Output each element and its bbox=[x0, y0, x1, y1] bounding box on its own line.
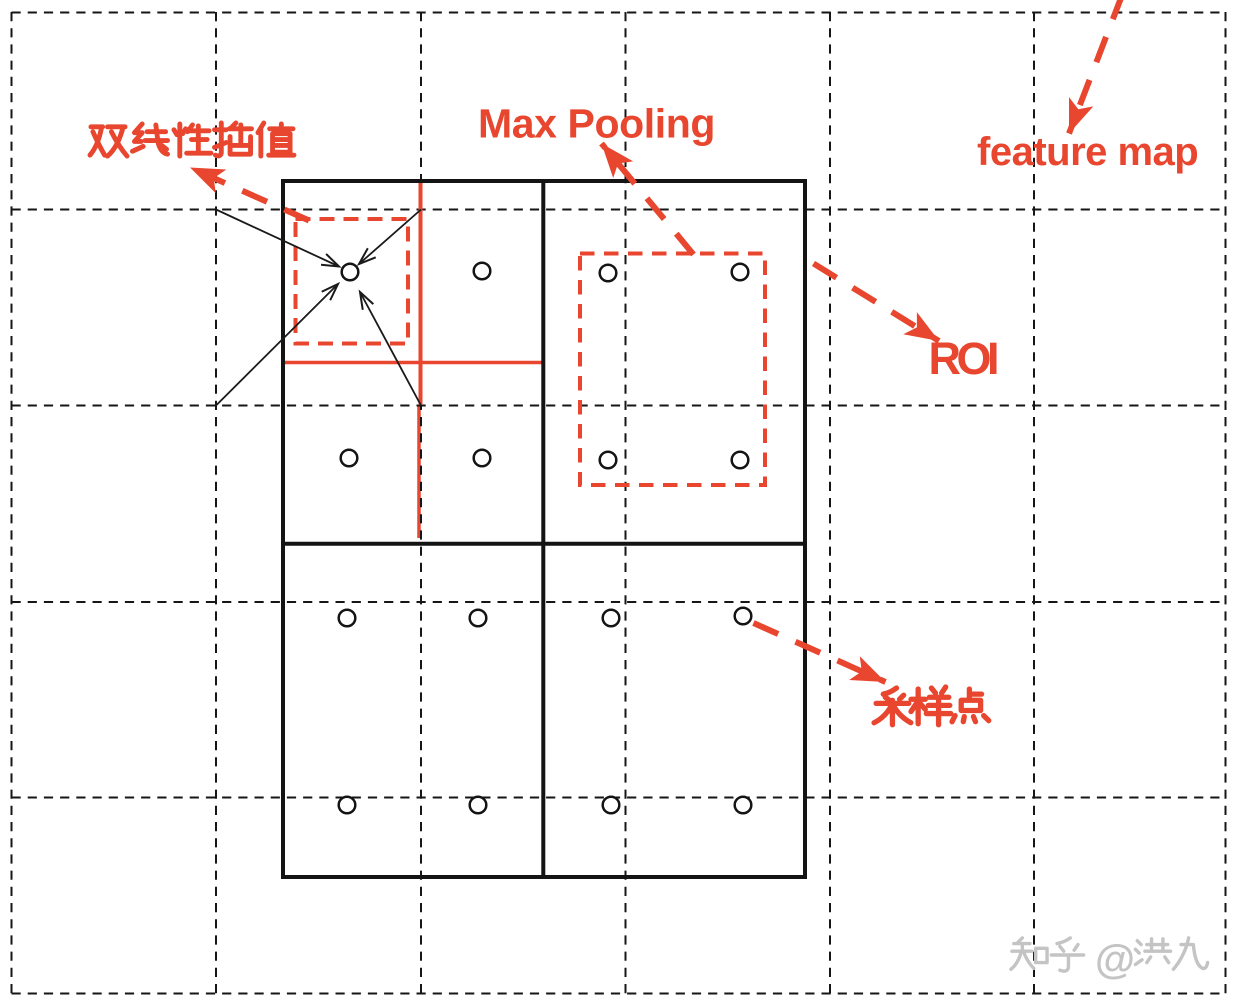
svg-text:ROI: ROI bbox=[929, 333, 998, 384]
svg-text:feature map: feature map bbox=[977, 130, 1198, 174]
svg-text:Max Pooling: Max Pooling bbox=[478, 101, 715, 147]
svg-text:@: @ bbox=[1095, 936, 1135, 982]
